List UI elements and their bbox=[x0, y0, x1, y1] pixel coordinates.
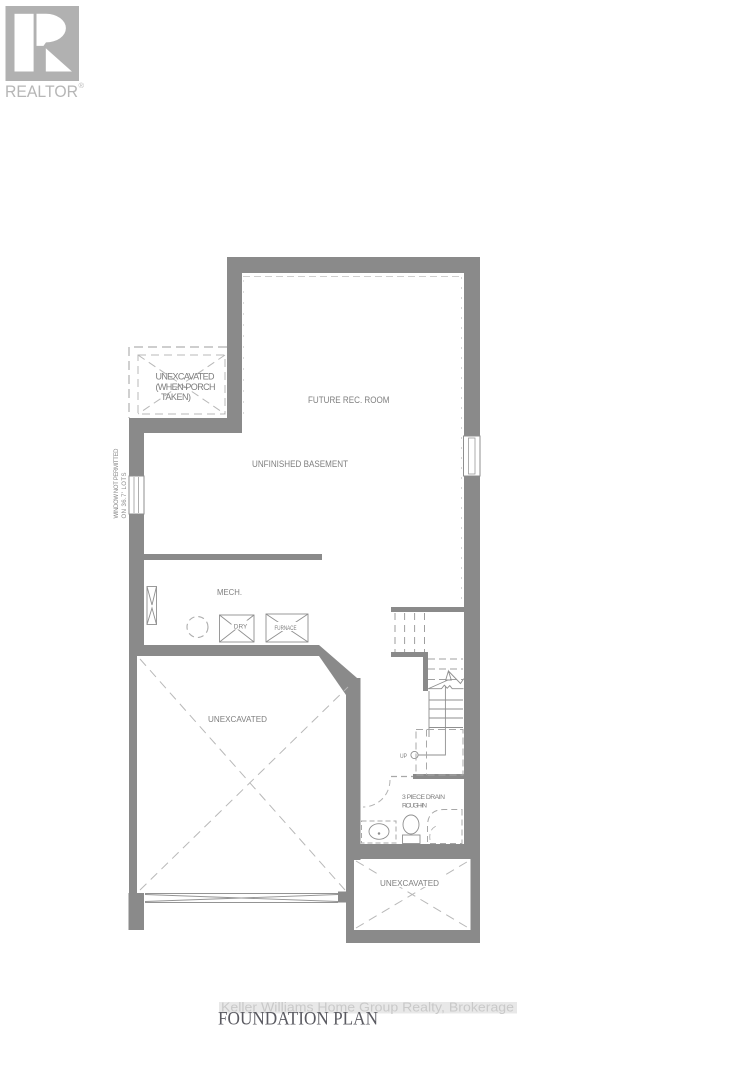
svg-text:ON 36.7' LOTS: ON 36.7' LOTS bbox=[122, 473, 128, 519]
svg-text:FUTURE REC. ROOM: FUTURE REC. ROOM bbox=[308, 395, 390, 405]
svg-text:UNFINISHED BASEMENT: UNFINISHED BASEMENT bbox=[252, 459, 348, 469]
svg-text:MECH.: MECH. bbox=[217, 587, 242, 597]
svg-text:DRY: DRY bbox=[234, 624, 248, 631]
svg-text:®: ® bbox=[79, 81, 85, 90]
svg-text:UNEXCAVATED: UNEXCAVATED bbox=[208, 714, 267, 724]
svg-text:3 PIECE DRAIN: 3 PIECE DRAIN bbox=[402, 794, 445, 801]
svg-text:FOUNDATION PLAN: FOUNDATION PLAN bbox=[218, 1010, 378, 1030]
svg-text:(WHEN-PORCH: (WHEN-PORCH bbox=[156, 382, 216, 392]
svg-text:UP: UP bbox=[400, 754, 407, 760]
svg-text:REALTOR: REALTOR bbox=[5, 83, 78, 101]
svg-text:TAKEN): TAKEN) bbox=[161, 392, 191, 402]
svg-text:WINDOW NOT PERMITTED: WINDOW NOT PERMITTED bbox=[114, 448, 120, 519]
svg-text:ROUGH-IN: ROUGH-IN bbox=[402, 803, 427, 810]
svg-text:FURNACE: FURNACE bbox=[275, 625, 297, 632]
svg-text:UNEXCAVATED: UNEXCAVATED bbox=[380, 878, 439, 888]
svg-text:UNEXCAVATED: UNEXCAVATED bbox=[156, 372, 216, 382]
